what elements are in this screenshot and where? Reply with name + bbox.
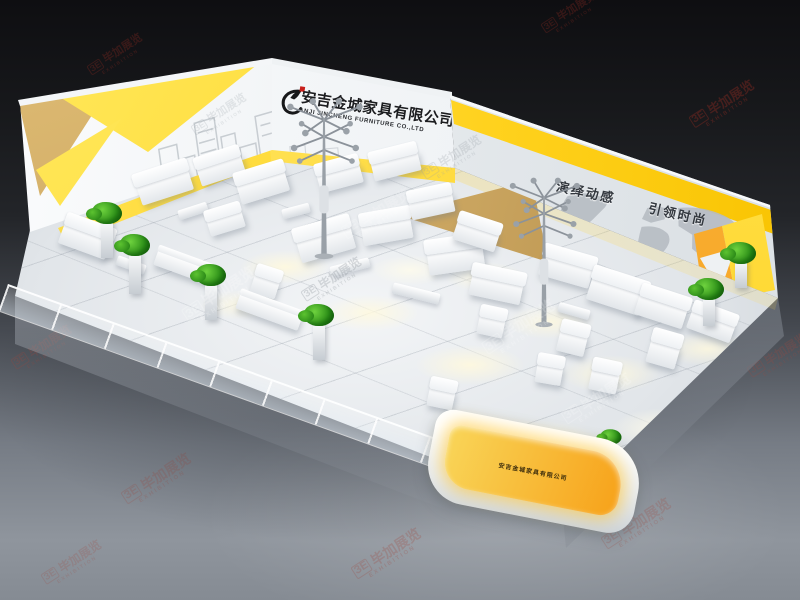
watermark: ЗE毕加展览EXHIBITION [340,186,417,247]
watermark-subtext: EXHIBITION [317,273,359,303]
watermark-subtext: EXHIBITION [579,390,628,424]
watermark-subtext: EXHIBITION [437,151,479,181]
watermark: ЗE毕加展览EXHIBITION [480,297,562,361]
watermark: ЗE毕加展览EXHIBITION [300,255,367,308]
watermark: ЗE毕加展览EXHIBITION [420,133,487,186]
watermark: ЗE毕加展览EXHIBITION [190,92,252,141]
watermark-subtext: EXHIBITION [200,285,252,322]
watermark-logo-icon: ЗE [181,299,205,321]
watermark-logo-icon: ЗE [561,403,584,424]
watermark-text: 毕加展览 [578,371,633,413]
watermark-text: 毕加展览 [317,255,364,291]
watermark: ЗE毕加展览EXHIBITION [560,371,637,432]
watermark-subtext: EXHIBITION [206,109,244,136]
watermark-logo-icon: ЗE [341,218,364,239]
watermark-logo-icon: ЗE [481,332,505,354]
watermark-text: 毕加展览 [199,264,258,309]
booth-render: ЗE毕加展览EXHIBITIONЗE毕加展览EXHIBITIONЗE毕加展览EX… [0,0,800,600]
watermark-text: 毕加展览 [437,133,484,169]
watermark-subtext: EXHIBITION [359,205,408,239]
watermark-subtext: EXHIBITION [500,318,552,355]
watermark-logo-icon: ЗE [300,283,320,302]
watermark: ЗE毕加展览EXHIBITION [180,264,262,328]
watermark-logo-icon: ЗE [420,161,440,180]
watermark-logo-icon: ЗE [190,118,209,135]
watermark-layer-overlay: ЗE毕加展览EXHIBITIONЗE毕加展览EXHIBITIONЗE毕加展览EX… [0,0,800,600]
watermark-text: 毕加展览 [358,186,413,228]
watermark-text: 毕加展览 [499,297,558,342]
watermark-text: 毕加展览 [206,92,249,125]
